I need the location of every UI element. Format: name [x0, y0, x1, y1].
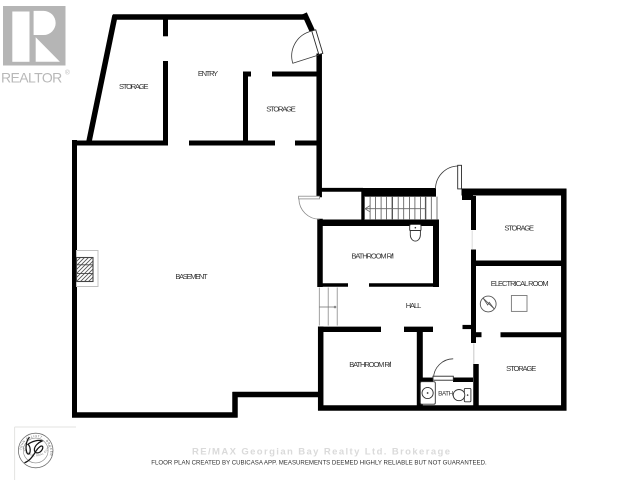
svg-text:REALTOR: REALTOR — [1, 69, 62, 85]
svg-text:STORAGE: STORAGE — [506, 364, 536, 373]
svg-text:ENTRY: ENTRY — [198, 69, 218, 78]
svg-text:ELECTRICAL ROOM: ELECTRICAL ROOM — [491, 279, 549, 288]
svg-text:FLOOR PLAN CREATED BY CUBICASA: FLOOR PLAN CREATED BY CUBICASA APP. MEAS… — [151, 459, 487, 466]
svg-text:HALL: HALL — [406, 301, 422, 310]
svg-text:STORAGE: STORAGE — [119, 82, 149, 91]
svg-text:BATHROOM R/I: BATHROOM R/I — [351, 251, 394, 260]
svg-text:®: ® — [65, 69, 70, 77]
svg-text:BASEMENT: BASEMENT — [175, 272, 208, 281]
svg-text:STORAGE: STORAGE — [504, 224, 534, 233]
svg-text:STORAGE: STORAGE — [266, 104, 296, 113]
svg-text:BATH: BATH — [438, 391, 453, 398]
svg-text:BATHROOM R/I: BATHROOM R/I — [349, 360, 392, 369]
